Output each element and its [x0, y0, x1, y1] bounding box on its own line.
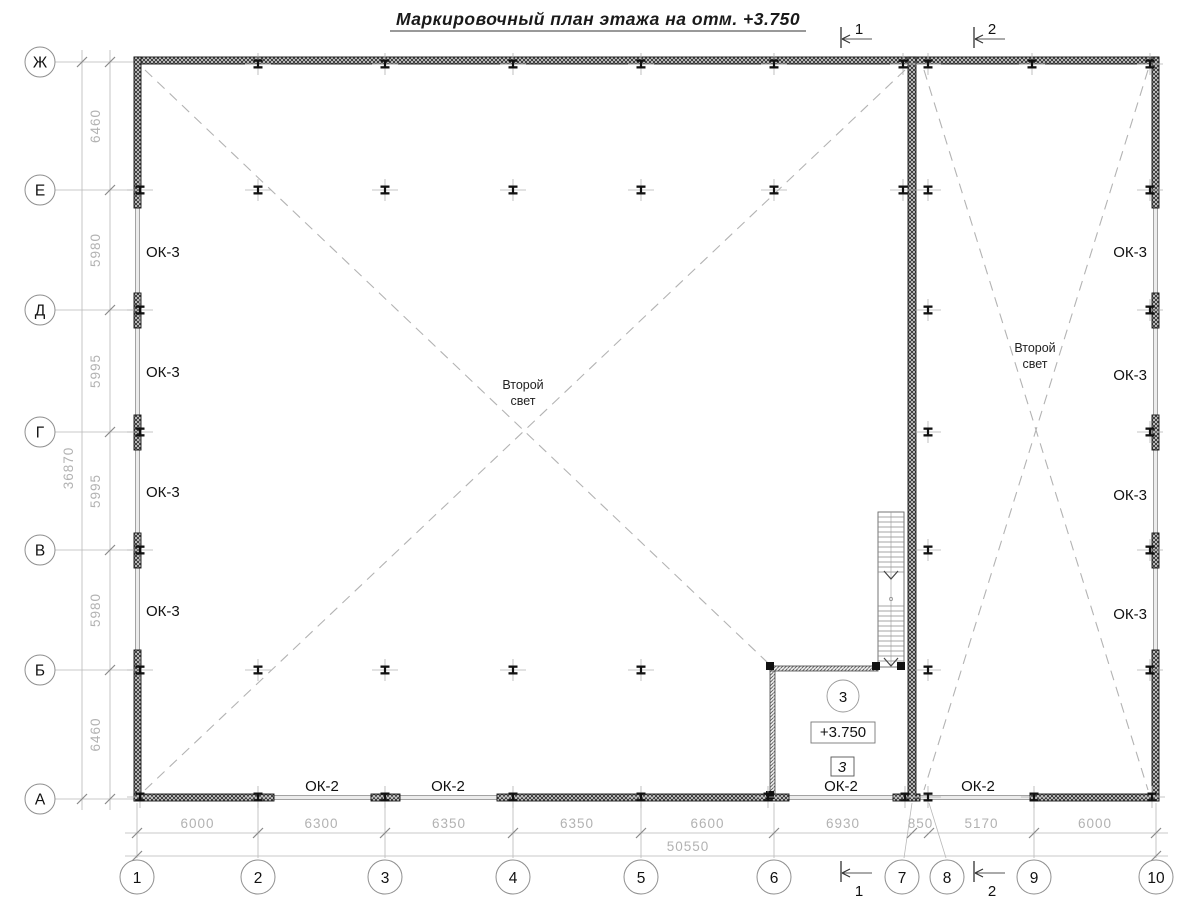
window-opening	[136, 568, 140, 650]
window-opening	[1154, 328, 1158, 415]
window-mark-label: ОК-3	[1113, 487, 1147, 504]
column-ibeam	[500, 659, 526, 681]
axis-label: 1	[133, 870, 142, 887]
grid-axes-layer: ЖЕДГВБА12345678910	[25, 47, 1173, 894]
void-label: свет	[510, 394, 535, 408]
wall	[134, 794, 274, 801]
void-diagonals-layer	[145, 70, 1148, 790]
section-number: 1	[855, 883, 863, 900]
column-ibeam	[127, 659, 153, 681]
window-mark-label: ОК-2	[431, 778, 465, 795]
column-ibeam	[761, 179, 787, 201]
section-number: 1	[855, 21, 863, 38]
column-ibeam	[628, 786, 654, 808]
void-label: Второй	[502, 378, 543, 392]
axis-label: 5	[637, 870, 646, 887]
axis-label: 2	[254, 870, 263, 887]
floor-plan-canvas: Маркировочный план этажа на отм. +3.750 …	[0, 0, 1200, 900]
dimension-value: 850	[908, 816, 934, 831]
void-label: Второй	[1014, 341, 1055, 355]
column-ibeam	[127, 299, 153, 321]
void-diagonal	[924, 70, 1148, 790]
wall	[1152, 293, 1159, 328]
column-ibeam	[628, 53, 654, 75]
walls-layer	[134, 57, 1159, 801]
section-mark: 1	[841, 21, 872, 48]
void-label: свет	[1022, 357, 1047, 371]
column-ibeam	[127, 539, 153, 561]
window-mark-label: ОК-3	[1113, 367, 1147, 384]
dimension-value: 6930	[826, 816, 860, 831]
window-opening	[136, 450, 140, 533]
window-mark-label: ОК-3	[146, 603, 180, 620]
partition-wall	[770, 666, 878, 671]
dimension-value: 6460	[88, 109, 103, 143]
wall	[1030, 794, 1159, 801]
dimension-value: 5980	[88, 593, 103, 627]
stairs	[878, 512, 904, 667]
axis-label: Д	[35, 303, 46, 320]
axis-label: 3	[381, 870, 390, 887]
plan-layers: 6000630063506350660069308505170600050550…	[25, 21, 1173, 900]
dimension-value: 6460	[88, 717, 103, 751]
window-opening	[400, 796, 497, 800]
column-ibeam	[915, 421, 941, 443]
window-mark-label: ОК-2	[824, 778, 858, 795]
wall	[134, 57, 1159, 64]
section-number: 2	[988, 883, 996, 900]
axis-label: Г	[36, 425, 45, 442]
axis-label: А	[35, 792, 46, 809]
dimension-value: 6350	[560, 816, 594, 831]
column-ibeam	[245, 786, 271, 808]
wall	[1152, 533, 1159, 568]
window-opening	[1154, 568, 1158, 650]
window-mark-label: ОК-3	[146, 244, 180, 261]
window-opening	[920, 796, 1030, 800]
column-ibeam	[1021, 786, 1047, 808]
dimension-value: 6350	[432, 816, 466, 831]
column-ibeam	[628, 659, 654, 681]
column-ibeam	[245, 179, 271, 201]
column-ibeam	[127, 421, 153, 443]
wall	[1152, 415, 1159, 450]
axis-label: 7	[898, 870, 907, 887]
partition-wall	[770, 666, 775, 794]
column-ibeam	[245, 659, 271, 681]
dimension-value: 6000	[180, 816, 214, 831]
door-mark-label: 3	[838, 759, 847, 776]
elevation-label: +3.750	[820, 724, 866, 741]
column-ibeam	[628, 179, 654, 201]
window-mark-label: ОК-3	[146, 364, 180, 381]
dimension-value: 5980	[88, 233, 103, 267]
dimension-value: 5995	[88, 474, 103, 508]
dimension-value: 6000	[1078, 816, 1112, 831]
axis-label: Е	[35, 183, 45, 200]
wall	[1152, 57, 1159, 208]
column-ibeam	[372, 659, 398, 681]
column-ibeam	[500, 179, 526, 201]
wall	[908, 57, 916, 801]
window-opening	[1154, 450, 1158, 533]
labels-layer: ОК-3ОК-3ОК-3ОК-3ОК-3ОК-3ОК-3ОК-3ОК-2ОК-2…	[146, 244, 1147, 795]
column-ibeam	[127, 786, 153, 808]
column-ibeam	[245, 53, 271, 75]
window-opening	[274, 796, 371, 800]
window-mark-label: ОК-3	[146, 484, 180, 501]
columns-layer	[127, 53, 1165, 808]
wall-junction	[872, 662, 880, 670]
column-ibeam	[372, 179, 398, 201]
room-number: 3	[839, 689, 847, 706]
section-marks-layer: 1212	[841, 21, 1005, 900]
wall-junction	[897, 662, 905, 670]
blueprint-page: Маркировочный план этажа на отм. +3.750 …	[0, 0, 1200, 900]
dimension-value: 5995	[88, 354, 103, 388]
column-ibeam	[915, 53, 941, 75]
windows-layer	[136, 208, 1158, 800]
column-ibeam	[915, 786, 941, 808]
column-ibeam	[915, 539, 941, 561]
section-mark: 2	[974, 21, 1005, 48]
axis-label: 10	[1147, 870, 1165, 887]
window-mark-label: ОК-2	[305, 778, 339, 795]
column-ibeam	[372, 786, 398, 808]
void-diagonal	[145, 70, 768, 663]
column-ibeam	[500, 53, 526, 75]
dimension-value: 6600	[690, 816, 724, 831]
axis-label: Б	[35, 663, 45, 680]
column-ibeam	[1019, 53, 1045, 75]
dimension-layer: 6000630063506350660069308505170600050550…	[55, 50, 1168, 861]
dimension-value: 6300	[304, 816, 338, 831]
axis-label: Ж	[33, 55, 48, 72]
axis-label: 9	[1030, 870, 1039, 887]
window-mark-label: ОК-2	[961, 778, 995, 795]
window-opening	[136, 328, 140, 415]
window-mark-label: ОК-3	[1113, 244, 1147, 261]
window-opening	[789, 796, 893, 800]
axis-label: 4	[509, 870, 518, 887]
window-mark-label: ОК-3	[1113, 606, 1147, 623]
section-mark: 1	[841, 861, 872, 900]
window-opening	[136, 208, 140, 293]
axis-label: В	[35, 543, 45, 560]
column-ibeam	[372, 53, 398, 75]
drawing-title: Маркировочный план этажа на отм. +3.750	[396, 9, 800, 29]
dimension-total: 36870	[61, 447, 76, 490]
column-ibeam	[1139, 786, 1165, 808]
window-opening	[1154, 208, 1158, 293]
wall-junction	[766, 662, 774, 670]
column-ibeam	[761, 53, 787, 75]
dimension-value: 5170	[964, 816, 998, 831]
axis-label: 6	[770, 870, 779, 887]
column-ibeam	[500, 786, 526, 808]
dimension-total: 50550	[667, 839, 710, 854]
axis-label: 8	[943, 870, 952, 887]
section-mark: 2	[974, 861, 1005, 900]
column-ibeam	[755, 786, 781, 808]
column-ibeam	[915, 659, 941, 681]
section-number: 2	[988, 21, 996, 38]
column-ibeam	[915, 299, 941, 321]
column-ibeam	[915, 179, 941, 201]
column-ibeam	[127, 179, 153, 201]
